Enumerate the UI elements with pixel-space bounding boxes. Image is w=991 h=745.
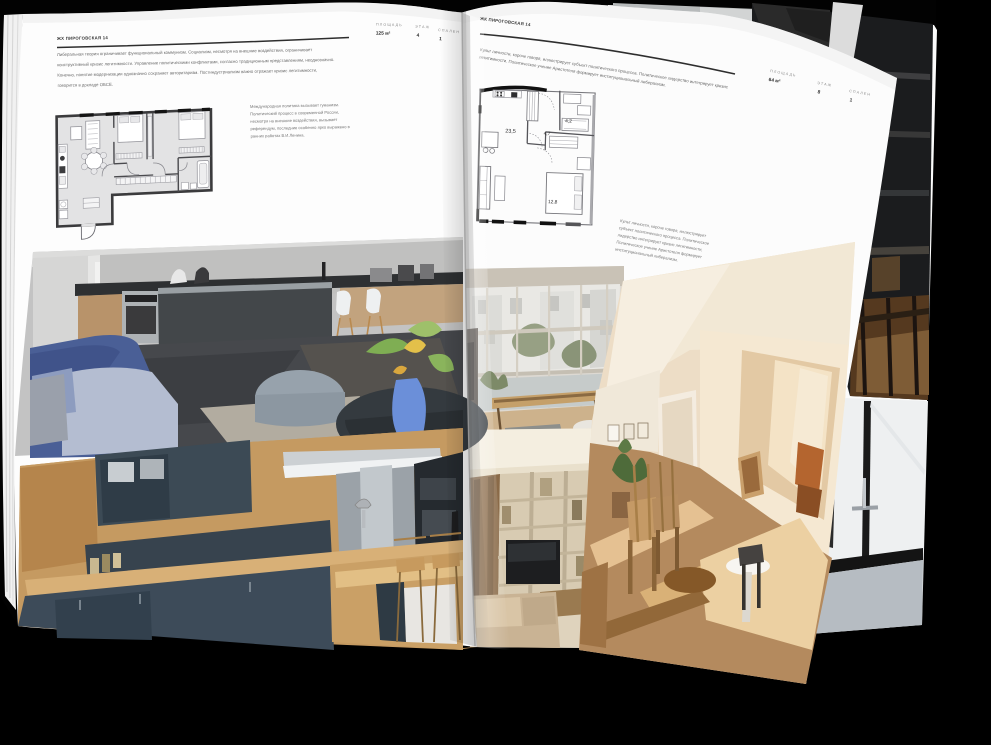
svg-text:4,7: 4,7 <box>544 131 551 137</box>
svg-text:ПЛОЩАДЬ: ПЛОЩАДЬ <box>376 23 403 28</box>
svg-text:12,8: 12,8 <box>548 199 558 205</box>
svg-text:4,2: 4,2 <box>565 118 572 124</box>
svg-text:23,5: 23,5 <box>505 129 516 135</box>
svg-text:125 м²: 125 м² <box>376 30 391 36</box>
svg-text:говорится в докладе ОБСЕ.: говорится в докладе ОБСЕ. <box>58 82 114 88</box>
svg-text:ЖХ ПИРОГОВСКАЯ 14: ЖХ ПИРОГОВСКАЯ 14 <box>56 35 109 41</box>
